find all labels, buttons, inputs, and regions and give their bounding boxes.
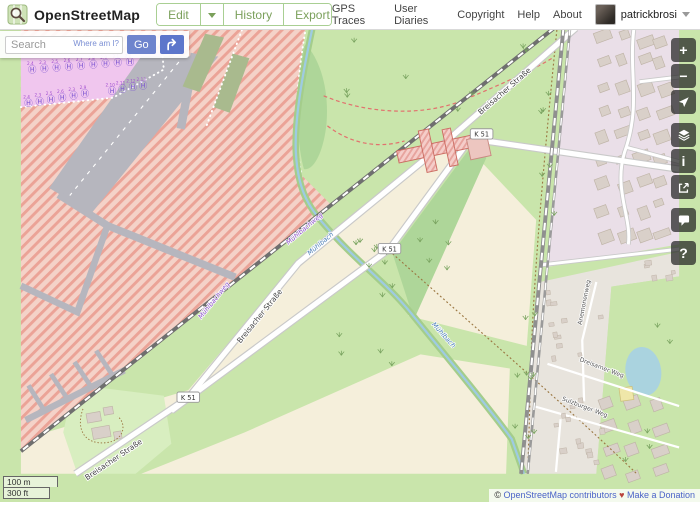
helipad-number: 2.13: [137, 77, 147, 82]
scale-imperial: 300 ft: [3, 487, 50, 499]
road-ref-badge: K 51: [177, 392, 200, 402]
helipad-icon: Ⓗ: [89, 60, 98, 70]
shed-building: [561, 413, 565, 418]
helipad-number: 2.5: [51, 59, 58, 64]
share-icon: [677, 181, 690, 194]
shed-building: [556, 343, 562, 348]
shed-building: [666, 275, 673, 282]
helipad-icon: Ⓗ: [139, 80, 148, 90]
history-button[interactable]: History: [224, 4, 284, 25]
shed-building: [645, 260, 652, 266]
helipad-icon: Ⓗ: [35, 96, 44, 106]
user-menu[interactable]: patrickbrosi: [595, 4, 690, 25]
nav-copyright[interactable]: Copyright: [457, 9, 504, 21]
osm-logo-icon: [7, 4, 28, 25]
directions-arrow-icon: [164, 37, 179, 52]
help-button[interactable]: ?: [671, 241, 696, 265]
helipad-number: 2.3: [34, 93, 41, 98]
shed-building: [546, 290, 551, 295]
road-ref-badge: K 51: [378, 243, 401, 253]
copyright-symbol: ©: [494, 490, 501, 500]
nav-about[interactable]: About: [553, 9, 582, 21]
helipad-icon: Ⓗ: [108, 86, 117, 96]
scale-metric: 100 m: [3, 476, 58, 487]
header-links: GPS Traces User Diaries Copyright Help A…: [332, 3, 700, 27]
search-panel: Where am I? Go: [0, 31, 189, 58]
directions-button[interactable]: [160, 35, 184, 54]
shed-building: [576, 439, 581, 445]
svg-text:K 51: K 51: [382, 245, 397, 253]
locate-button[interactable]: [671, 90, 696, 114]
helipad-icon: Ⓗ: [81, 89, 90, 99]
top-navbar: OpenStreetMap Edit History Export GPS Tr…: [0, 0, 700, 30]
map-action-buttons: Edit History Export: [156, 3, 332, 26]
nav-gps-traces[interactable]: GPS Traces: [332, 3, 381, 27]
helipad-number: 2.6: [64, 58, 71, 63]
osm-contributors-link[interactable]: OpenStreetMap contributors: [504, 490, 617, 500]
zoom-out-button[interactable]: −: [671, 64, 696, 88]
shed-building: [598, 315, 603, 319]
helipad-number: 2.9: [80, 85, 87, 90]
helipad-number: 2.11: [116, 81, 126, 86]
helipad-icon: Ⓗ: [28, 64, 37, 74]
helipad-number: 2.5: [46, 91, 53, 96]
road-ref-badge: K 51: [470, 129, 493, 139]
helipad-icon: Ⓗ: [129, 82, 138, 92]
where-am-i-link[interactable]: Where am I?: [73, 39, 119, 48]
helipad-icon: Ⓗ: [118, 84, 127, 94]
shed-building: [549, 322, 555, 326]
osm-brand[interactable]: OpenStreetMap: [0, 4, 140, 25]
helipad-icon: Ⓗ: [52, 62, 61, 72]
svg-text:K 51: K 51: [474, 131, 489, 139]
helipad-number: 2.4: [23, 95, 30, 100]
map[interactable]: Ⓗ2.4Ⓗ2.3Ⓗ2.5Ⓗ2.6Ⓗ2.7Ⓗ2.8Ⓗ2.9Ⓗ2.1Ⓗ2.2Ⓗ2.1…: [0, 30, 700, 502]
locate-arrow-icon: [677, 96, 690, 109]
zoom-in-button[interactable]: +: [671, 38, 696, 62]
helipad-icon: Ⓗ: [40, 63, 49, 73]
shed-building: [559, 448, 567, 454]
helipad-icon: Ⓗ: [65, 61, 74, 71]
shed-building: [566, 417, 571, 422]
helipad-number: 2.3: [68, 87, 75, 92]
edit-button[interactable]: Edit: [157, 4, 201, 25]
shed-building: [671, 270, 675, 274]
attribution: © OpenStreetMap contributors ♥ Make a Do…: [489, 489, 700, 502]
avatar: [595, 4, 616, 25]
shed-building: [554, 423, 559, 427]
map-controls: + − i ?: [671, 38, 696, 267]
shed-building: [594, 460, 600, 465]
add-note-button[interactable]: [671, 208, 696, 232]
edit-caret-button[interactable]: [201, 4, 224, 25]
chevron-down-icon: [682, 12, 690, 17]
helipad-icon: Ⓗ: [101, 59, 110, 69]
helipad-number: 2.10: [106, 82, 116, 87]
note-bubble-icon: [677, 213, 691, 227]
share-button[interactable]: [671, 175, 696, 199]
layers-button[interactable]: [671, 123, 696, 147]
helipad-icon: Ⓗ: [69, 91, 78, 101]
nav-help[interactable]: Help: [517, 9, 540, 21]
helipad-icon: Ⓗ: [24, 98, 33, 108]
map-data-button[interactable]: i: [671, 149, 696, 173]
shed-building: [587, 452, 593, 458]
helipad-icon: Ⓗ: [126, 57, 135, 67]
shed-building: [551, 356, 556, 362]
helipad-icon: Ⓗ: [47, 94, 56, 104]
shed-building: [599, 428, 605, 434]
shed-building: [553, 332, 558, 338]
heart-icon: ♥: [619, 490, 624, 500]
layers-icon: [677, 128, 691, 142]
svg-text:K 51: K 51: [181, 394, 196, 402]
helipad-icon: Ⓗ: [77, 61, 86, 71]
nav-user-diaries[interactable]: User Diaries: [394, 3, 444, 27]
helipad-number: 2.6: [57, 89, 64, 94]
map-canvas[interactable]: Ⓗ2.4Ⓗ2.3Ⓗ2.5Ⓗ2.6Ⓗ2.7Ⓗ2.8Ⓗ2.9Ⓗ2.1Ⓗ2.2Ⓗ2.1…: [0, 30, 700, 502]
shed-building: [550, 301, 557, 306]
donate-link[interactable]: Make a Donation: [627, 490, 695, 500]
helipad-number: 2.12: [126, 79, 136, 84]
brand-title: OpenStreetMap: [34, 7, 140, 23]
export-button[interactable]: Export: [284, 4, 332, 25]
shed-building: [652, 275, 658, 281]
helipad-number: 2.4: [27, 61, 34, 66]
helipad-icon: Ⓗ: [58, 93, 67, 103]
search-go-button[interactable]: Go: [127, 35, 156, 54]
user-name: patrickbrosi: [621, 9, 677, 21]
scale-bar: 100 m 300 ft: [3, 476, 58, 499]
helipad-number: 2.3: [39, 60, 46, 65]
helipad-icon: Ⓗ: [114, 58, 123, 68]
shed-building: [561, 318, 567, 323]
chevron-down-icon: [208, 13, 216, 18]
